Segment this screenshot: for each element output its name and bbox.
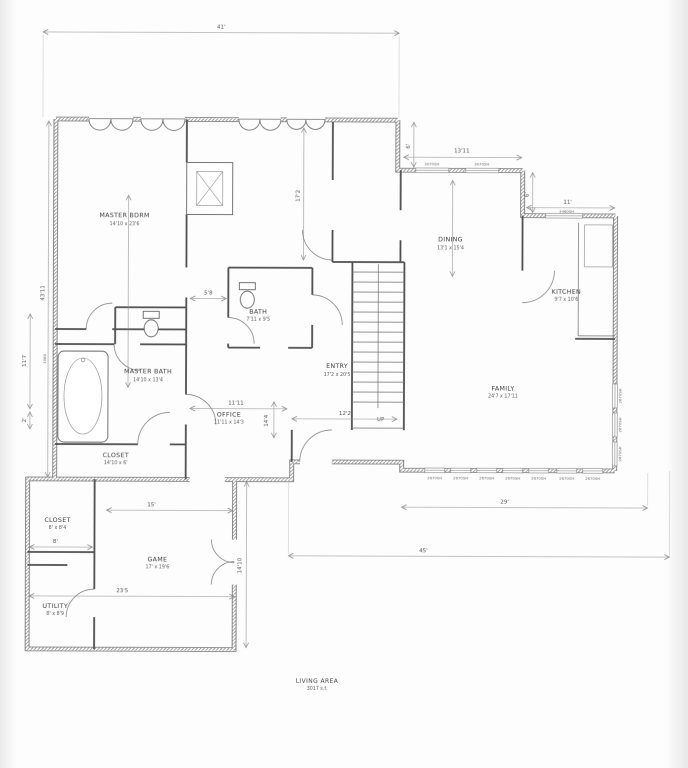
room-dims-kitchen: 9'7 x 10'6: [554, 297, 578, 303]
toilet-master-wc: [143, 311, 159, 337]
window-label: 2670SH: [617, 388, 622, 403]
interior-walls: [27, 119, 616, 651]
room-label-dining: DINING: [438, 236, 463, 243]
window-label: 2670SH: [559, 476, 574, 481]
window-label: 2670SH: [453, 475, 468, 480]
window-label: 2670SH: [427, 475, 442, 480]
dim-closet-width: 8': [53, 539, 58, 545]
room-dims-dining: 13'1 x 15'4: [437, 245, 464, 251]
door-swing-arcs: [66, 229, 554, 619]
dimension-labels: 41' 43'11 11'7 2' 3068 6' 13'11 6' 11' 1…: [21, 24, 572, 596]
dim-game-width: 15': [147, 502, 156, 508]
dim-wing-width: 23'5: [116, 588, 129, 594]
room-label-master-bdrm: MASTER BDRM: [99, 212, 149, 219]
room-label-closet-master: CLOSET: [103, 452, 129, 459]
dim-right-step: 6': [406, 144, 412, 149]
dim-left-jog: 2': [22, 417, 28, 422]
dim-left-overall: 43'11: [40, 285, 46, 301]
floor-plan-drawing: UP: [0, 0, 688, 768]
fixtures: [58, 162, 616, 444]
room-label-master-bath: MASTER BATH: [124, 368, 172, 375]
room-label-utility: UTILITY: [42, 603, 68, 610]
kitchen-counter: [578, 223, 615, 336]
room-dims-game: 17' x 19'6: [145, 564, 169, 570]
living-area-note: LIVING AREA 3017 s.f.: [296, 678, 339, 692]
room-dims-utility: 8' x 8'9: [46, 611, 64, 617]
room-label-closet-small: CLOSET: [44, 517, 70, 524]
dim-kitchen-width: 11': [563, 200, 572, 206]
dim-entry-width: 12'2: [339, 411, 351, 417]
door-code-label: 3068: [42, 354, 47, 364]
window-label: 2670SH: [531, 476, 546, 481]
stair-treads: [352, 264, 405, 428]
dim-office-height: 14'4: [264, 414, 270, 427]
window-label: 2670SH: [617, 417, 622, 432]
window-label: 3070SH: [474, 161, 489, 166]
dim-office-width: 11'11: [228, 401, 244, 407]
floor-plan-page: UP: [0, 0, 688, 768]
dim-left-bath: 11'7: [22, 354, 28, 367]
window-label: 3070SH: [424, 161, 439, 166]
window-label: 3460SH: [559, 209, 574, 214]
window-label: 2670SH: [479, 475, 494, 480]
room-dims-master-bath: 14'10 x 13'4: [133, 377, 163, 383]
exterior-walls: [27, 119, 616, 651]
room-dims-bath: 7'11 x 9'5: [246, 317, 270, 323]
dim-kitchen-step: 6': [525, 192, 531, 197]
dimension-lines: [29, 32, 671, 649]
dim-top-width: 41': [217, 25, 226, 31]
dim-breakfast-width: 13'11: [454, 148, 470, 154]
dim-game-height: 14'10: [237, 557, 243, 573]
window-label: 2670SH: [505, 476, 520, 481]
bathtub: [58, 351, 108, 442]
stairs-up-label: UP: [377, 417, 385, 423]
room-dims-master-bdrm: 14'10 x 23'6: [110, 221, 140, 227]
staircase: UP: [352, 264, 405, 428]
room-dims-closet-small: 8' x 8'4: [49, 525, 67, 531]
room-label-office: OFFICE: [217, 412, 241, 419]
dim-overall-width: 45': [419, 548, 428, 554]
living-area-value: 3017 s.f.: [307, 686, 328, 692]
room-dims-closet-master: 14'10 x 6': [104, 460, 128, 466]
room-label-game: GAME: [147, 556, 167, 563]
room-label-entry: ENTRY: [326, 363, 348, 370]
window-label: 2670SH: [585, 476, 600, 481]
living-area-label: LIVING AREA: [296, 678, 339, 685]
dim-family-windows-width: 29': [500, 500, 509, 506]
dim-sitting-height: 17'2: [296, 190, 302, 202]
room-label-family: FAMILY: [491, 386, 514, 393]
room-dims-office: 11'11 x 14'3: [214, 420, 244, 426]
fireplace: [187, 162, 233, 214]
window-label: 2670SH: [617, 446, 622, 461]
toilet-hall-bath: [239, 283, 255, 309]
room-dims-entry: 17'2 x 20'5: [324, 372, 351, 378]
room-label-kitchen: KITCHEN: [552, 289, 581, 296]
dim-hall-width: 5'8: [204, 291, 213, 297]
room-label-bath: BATH: [249, 309, 267, 316]
room-dims-family: 24'7 x 17'11: [488, 394, 518, 400]
